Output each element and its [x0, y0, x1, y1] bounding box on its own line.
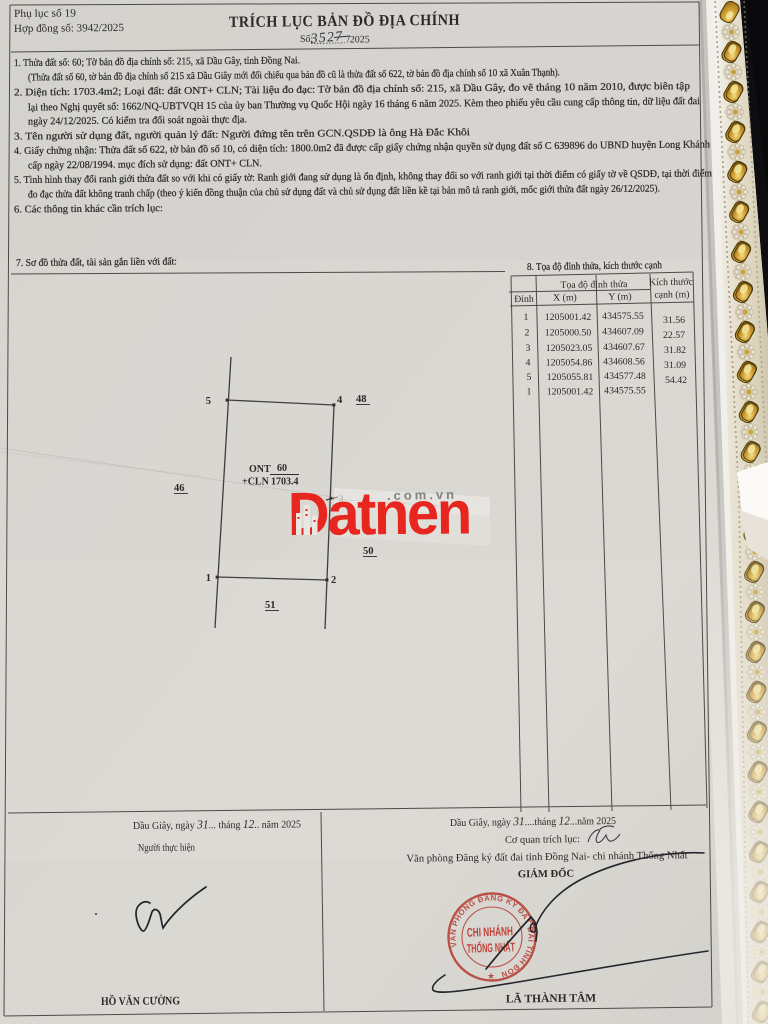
svg-text:Người thực hiện: Người thực hiện	[138, 842, 196, 854]
svg-text:1205000.50: 1205000.50	[545, 328, 592, 339]
svg-text:31.82: 31.82	[664, 345, 686, 356]
svg-text:ONT: ONT	[249, 464, 271, 475]
svg-text:6. Các thông tin khác cần tríc: 6. Các thông tin khác cần trích lục:	[14, 203, 163, 215]
svg-text:GIÁM ĐỐC: GIÁM ĐỐC	[518, 867, 574, 881]
svg-text:434607.67: 434607.67	[603, 342, 645, 353]
svg-text:2: 2	[331, 575, 336, 586]
svg-text:8. Tọa độ đỉnh thửa, kích thướ: 8. Tọa độ đỉnh thửa, kích thước cạnh	[527, 260, 662, 273]
svg-text:1: 1	[524, 312, 529, 323]
svg-text:1205055.81: 1205055.81	[547, 372, 594, 383]
svg-text:Y (m): Y (m)	[608, 291, 631, 302]
svg-text:48: 48	[356, 394, 367, 405]
svg-text:1205054.86: 1205054.86	[546, 358, 593, 369]
svg-text:CHI NHÁNH: CHI NHÁNH	[467, 923, 513, 940]
svg-text:31.56: 31.56	[663, 315, 685, 326]
svg-text:Hợp đồng số: 3942/2025: Hợp đồng số: 3942/2025	[14, 22, 125, 35]
svg-text:cấp ngày 22/08/1994. mục đích: cấp ngày 22/08/1994. mục đích sử dụng: đ…	[28, 158, 262, 171]
svg-text:Phụ lục số 19: Phụ lục số 19	[14, 7, 77, 20]
svg-text:22.57: 22.57	[663, 330, 685, 341]
svg-text:3527: 3527	[309, 29, 344, 47]
svg-text:4: 4	[526, 358, 531, 369]
svg-text:31.09: 31.09	[664, 360, 686, 371]
svg-text:1205023.05: 1205023.05	[546, 343, 593, 354]
svg-text:ngày 24/12/2025. Có kiểm tra đ: ngày 24/12/2025. Có kiểm tra đối soát ng…	[28, 114, 247, 127]
svg-text:54.42: 54.42	[665, 375, 687, 386]
svg-text:2: 2	[525, 328, 530, 339]
svg-text:434575.55: 434575.55	[604, 386, 646, 397]
svg-text:46: 46	[174, 483, 185, 494]
svg-text:7. Sơ đồ thửa đất, tài sản gắn: 7. Sơ đồ thửa đất, tài sản gắn liền với …	[16, 256, 177, 269]
svg-text:3: 3	[526, 343, 531, 354]
svg-text:Đỉnh: Đỉnh	[514, 294, 534, 305]
svg-text:X (m): X (m)	[553, 292, 577, 303]
svg-text:51: 51	[265, 600, 276, 611]
svg-text:1: 1	[206, 573, 211, 584]
svg-text:Datnen: Datnen	[288, 478, 471, 548]
svg-text:Kích thước: Kích thước	[649, 277, 694, 289]
svg-text:1: 1	[527, 387, 532, 398]
svg-text:434575.55: 434575.55	[602, 311, 644, 322]
svg-text:LÃ THÀNH TÂM: LÃ THÀNH TÂM	[506, 990, 597, 1005]
svg-text:cạnh (m): cạnh (m)	[654, 289, 689, 300]
svg-text:60: 60	[277, 463, 287, 474]
svg-text:1205001.42: 1205001.42	[545, 312, 592, 323]
svg-text:1205001.42: 1205001.42	[547, 387, 594, 398]
svg-text:Cơ quan trích lục:: Cơ quan trích lục:	[505, 834, 580, 846]
svg-text:434608.56: 434608.56	[603, 357, 645, 368]
svg-text:Tọa độ đỉnh thửa: Tọa độ đỉnh thửa	[560, 279, 628, 291]
svg-text:50: 50	[363, 546, 374, 557]
svg-text:5: 5	[206, 396, 211, 407]
svg-text:4: 4	[337, 395, 343, 406]
svg-text:★: ★	[487, 971, 495, 981]
svg-text:5: 5	[527, 372, 532, 383]
svg-text:434607.09: 434607.09	[602, 327, 644, 338]
svg-text:/2025: /2025	[347, 34, 370, 45]
svg-text:434577.48: 434577.48	[604, 371, 646, 382]
svg-text:+CLN: +CLN	[242, 477, 270, 488]
